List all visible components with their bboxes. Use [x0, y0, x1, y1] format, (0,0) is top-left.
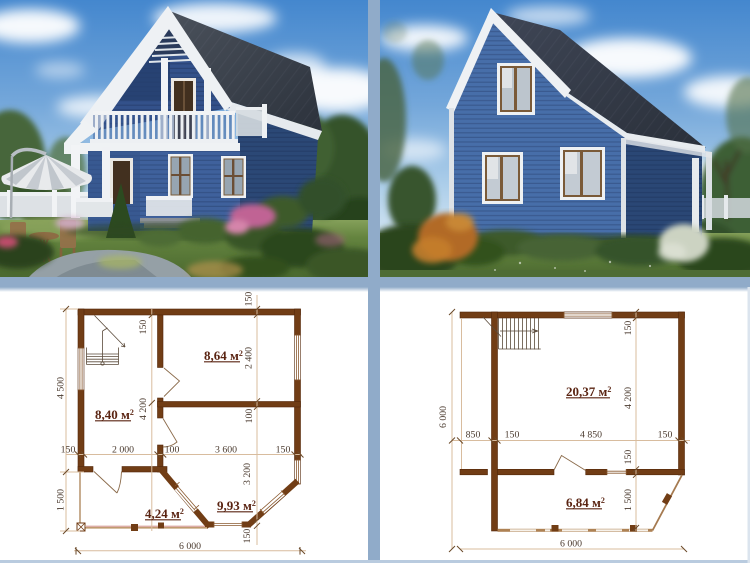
svg-text:2 400: 2 400	[244, 347, 255, 369]
svg-text:6 000: 6 000	[438, 406, 449, 428]
svg-text:1 500: 1 500	[623, 489, 634, 511]
svg-text:100: 100	[244, 409, 255, 424]
svg-text:4 500: 4 500	[56, 377, 67, 399]
svg-text:150: 150	[276, 445, 291, 456]
svg-text:4,24 м2: 4,24 м2	[145, 506, 184, 521]
svg-text:6,84 м2: 6,84 м2	[566, 495, 605, 510]
svg-text:4 200: 4 200	[623, 387, 634, 409]
svg-text:150: 150	[61, 445, 76, 456]
svg-text:150: 150	[505, 430, 520, 441]
svg-text:6 000: 6 000	[179, 541, 201, 552]
svg-text:4 850: 4 850	[580, 430, 602, 441]
svg-text:150: 150	[623, 450, 634, 465]
svg-text:2 000: 2 000	[112, 445, 134, 456]
svg-text:150: 150	[244, 292, 255, 307]
svg-text:150: 150	[623, 321, 634, 336]
svg-text:8,64 м2: 8,64 м2	[204, 348, 243, 363]
svg-text:850: 850	[466, 430, 481, 441]
svg-text:8,40 м2: 8,40 м2	[95, 407, 134, 422]
svg-text:4 200: 4 200	[138, 398, 149, 420]
svg-text:150: 150	[138, 320, 149, 335]
svg-text:3 200: 3 200	[242, 463, 253, 485]
svg-text:20,37 м2: 20,37 м2	[566, 384, 611, 399]
svg-text:100: 100	[165, 445, 180, 456]
svg-text:9,93 м2: 9,93 м2	[217, 498, 256, 513]
svg-text:150: 150	[658, 430, 673, 441]
svg-text:1 500: 1 500	[56, 489, 67, 511]
svg-text:150: 150	[242, 529, 253, 544]
svg-text:3 600: 3 600	[215, 445, 237, 456]
svg-text:6 000: 6 000	[560, 539, 582, 550]
